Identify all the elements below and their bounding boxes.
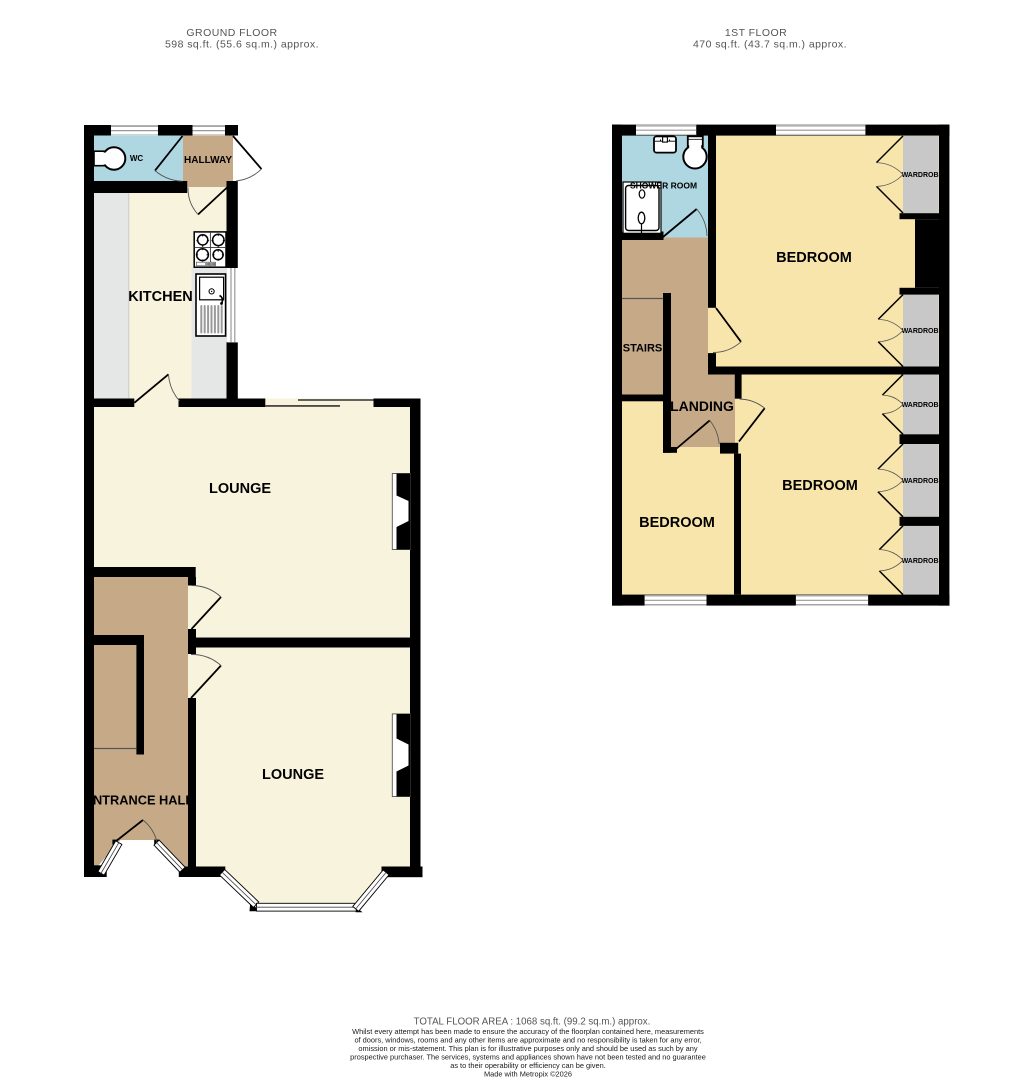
svg-text:470 sq.ft. (43.7 sq.m.) approx: 470 sq.ft. (43.7 sq.m.) approx. bbox=[693, 39, 847, 51]
svg-text:KITCHEN: KITCHEN bbox=[128, 289, 192, 305]
svg-text:BEDROOM: BEDROOM bbox=[776, 250, 852, 266]
svg-text:WARDROBE: WARDROBE bbox=[902, 328, 944, 335]
svg-text:WARDROBE: WARDROBE bbox=[902, 478, 944, 485]
svg-text:WARDROBE: WARDROBE bbox=[902, 402, 944, 409]
svg-text:LOUNGE: LOUNGE bbox=[262, 767, 324, 783]
svg-text:SHOWER ROOM: SHOWER ROOM bbox=[630, 181, 697, 191]
svg-text:WARDROBE: WARDROBE bbox=[902, 558, 944, 565]
svg-text:ENTRANCE HALL: ENTRANCE HALL bbox=[84, 793, 193, 808]
svg-text:GROUND FLOOR: GROUND FLOOR bbox=[186, 27, 277, 39]
svg-text:BEDROOM: BEDROOM bbox=[639, 515, 715, 531]
svg-text:WARDROBE: WARDROBE bbox=[902, 172, 944, 179]
svg-text:1ST FLOOR: 1ST FLOOR bbox=[725, 27, 787, 39]
svg-text:WC: WC bbox=[130, 154, 144, 163]
svg-text:HALLWAY: HALLWAY bbox=[184, 155, 232, 166]
svg-text:Made with Metropix ©2026: Made with Metropix ©2026 bbox=[484, 1070, 572, 1079]
svg-text:LOUNGE: LOUNGE bbox=[209, 481, 271, 497]
svg-text:STAIRS: STAIRS bbox=[623, 343, 663, 355]
svg-text:598 sq.ft. (55.6 sq.m.) approx: 598 sq.ft. (55.6 sq.m.) approx. bbox=[165, 39, 319, 51]
svg-text:BEDROOM: BEDROOM bbox=[782, 478, 858, 494]
svg-text:TOTAL FLOOR AREA : 1068 sq.ft.: TOTAL FLOOR AREA : 1068 sq.ft. (99.2 sq.… bbox=[414, 1017, 651, 1028]
svg-text:LANDING: LANDING bbox=[670, 398, 734, 414]
